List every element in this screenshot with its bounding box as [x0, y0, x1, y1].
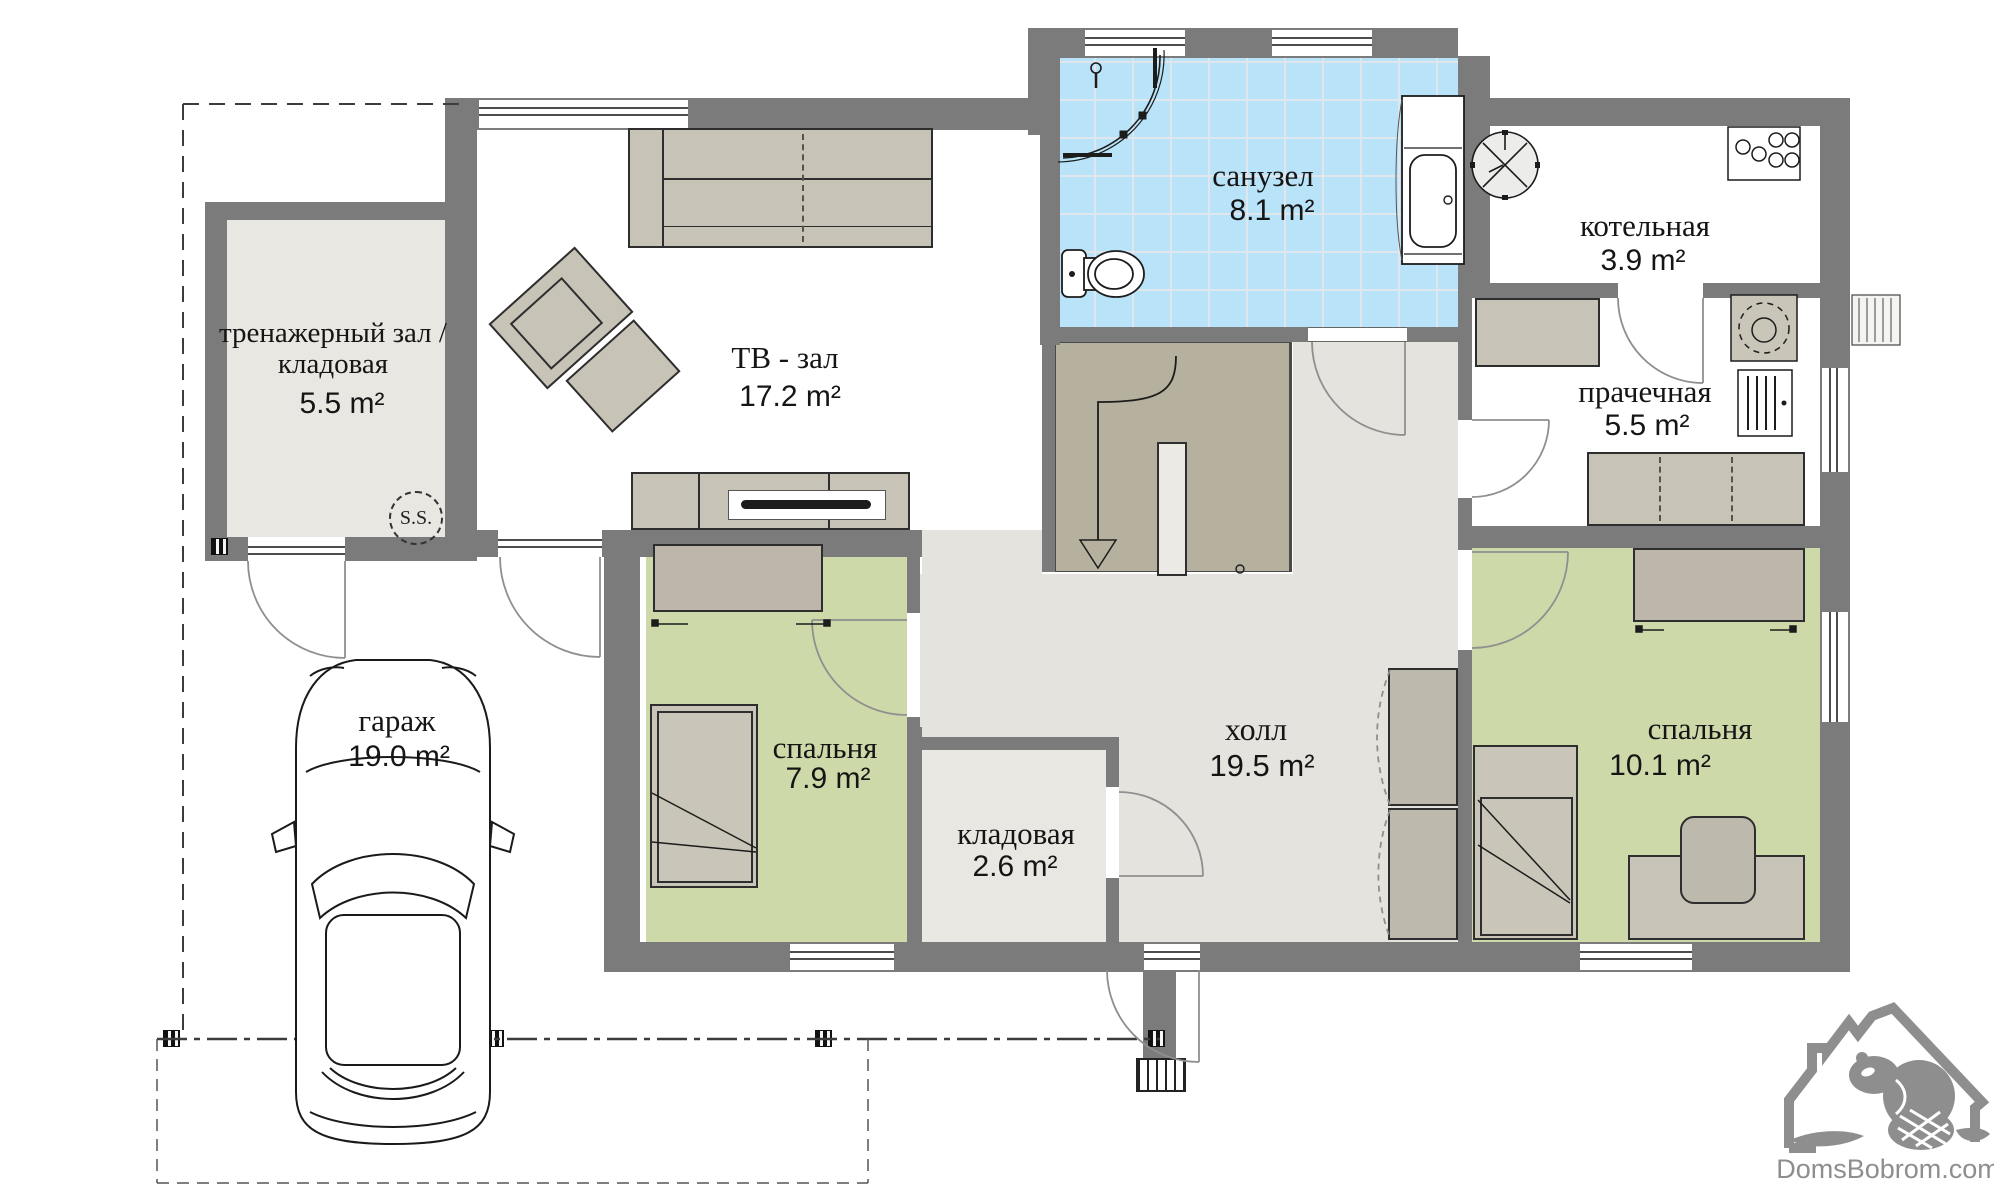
room-label-pantry-name: кладовая [957, 816, 1075, 852]
room-label-gym-area: 5.5 m² [299, 387, 384, 421]
room-label-bathroom-name: санузел [1212, 158, 1313, 194]
room-label-pantry-area: 2.6 m² [972, 850, 1057, 884]
cooktop [1728, 127, 1800, 180]
floor-plan: S.S. [0, 0, 1994, 1200]
room-label-tv-name: ТВ - зал [731, 340, 838, 376]
room-label-bedroom-left-name: спальня [773, 730, 878, 766]
logo-icon [1789, 1008, 1990, 1150]
bathtub [1396, 96, 1464, 264]
room-label-garage-name: гараж [358, 703, 435, 739]
room-label-laundry-area: 5.5 m² [1604, 409, 1689, 443]
room-label-bedroom-right-area: 10.1 m² [1609, 749, 1711, 783]
stairs-arrow [1080, 356, 1244, 573]
room-label-bedroom-left-area: 7.9 m² [785, 762, 870, 796]
room-label-boiler-name: котельная [1580, 208, 1710, 244]
vent-hatch [1852, 295, 1900, 345]
room-label-tv-area: 17.2 m² [739, 380, 841, 414]
room-label-gym-name: тренажерный зал / кладовая [203, 318, 463, 380]
shower [1058, 48, 1164, 162]
room-label-hall-name: холл [1225, 711, 1287, 748]
room-label-garage-area: 19.0 m² [348, 740, 450, 774]
room-label-boiler-area: 3.9 m² [1600, 244, 1685, 278]
room-label-bedroom-right-name: спальня [1648, 711, 1753, 747]
boiler [1470, 130, 1540, 200]
room-label-laundry-name: прачечная [1578, 374, 1711, 410]
washing-machine [1731, 295, 1797, 361]
room-label-bathroom-area: 8.1 m² [1229, 194, 1314, 228]
room-label-hall-area: 19.5 m² [1209, 748, 1314, 784]
toilet [1062, 250, 1144, 297]
plan-linework [0, 0, 1994, 1200]
watermark-text: DomsBobrom.com [1776, 1154, 1994, 1185]
radiator [1738, 370, 1792, 436]
